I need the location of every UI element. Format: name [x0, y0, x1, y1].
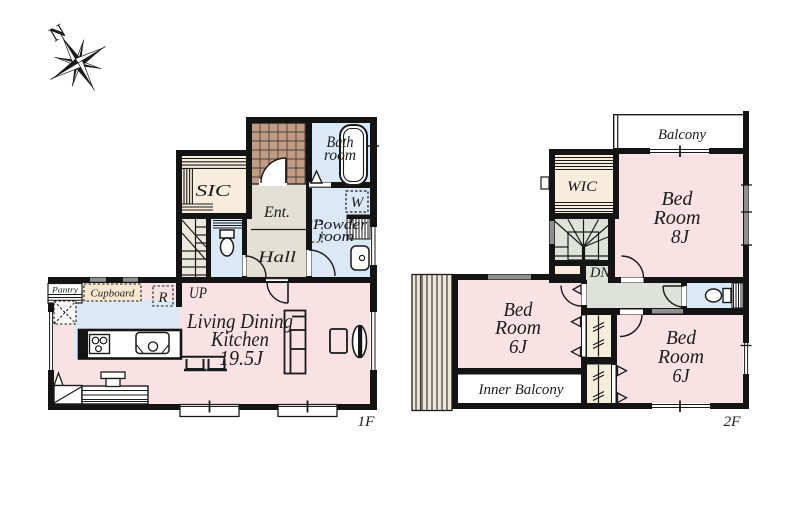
svg-text:room: room: [324, 147, 356, 164]
svg-text:Pantry: Pantry: [51, 285, 78, 295]
svg-text:DN: DN: [589, 265, 611, 281]
svg-text:Ent.: Ent.: [263, 204, 290, 221]
svg-text:UP: UP: [189, 285, 207, 302]
svg-text:WIC: WIC: [567, 179, 598, 195]
svg-text:Inner Balcony: Inner Balcony: [478, 382, 564, 398]
svg-text:Room: Room: [657, 347, 704, 368]
svg-text:19.5J: 19.5J: [219, 346, 265, 370]
svg-text:Cupboard: Cupboard: [91, 288, 135, 300]
svg-text:Balcony: Balcony: [658, 127, 706, 143]
svg-text:6J: 6J: [673, 366, 691, 387]
svg-text:Bed: Bed: [666, 328, 696, 349]
svg-text:1F: 1F: [358, 414, 376, 430]
svg-text:room: room: [318, 229, 354, 245]
svg-text:8J: 8J: [671, 227, 690, 248]
svg-text:SIC: SIC: [196, 181, 232, 200]
svg-text:2F: 2F: [724, 414, 742, 430]
svg-text:6J: 6J: [509, 337, 528, 358]
svg-text:Room: Room: [494, 318, 541, 339]
svg-text:W: W: [351, 195, 365, 211]
svg-text:R: R: [157, 290, 167, 306]
svg-text:Room: Room: [652, 208, 700, 229]
svg-text:Bed: Bed: [662, 189, 693, 210]
svg-text:Hall: Hall: [257, 249, 297, 266]
